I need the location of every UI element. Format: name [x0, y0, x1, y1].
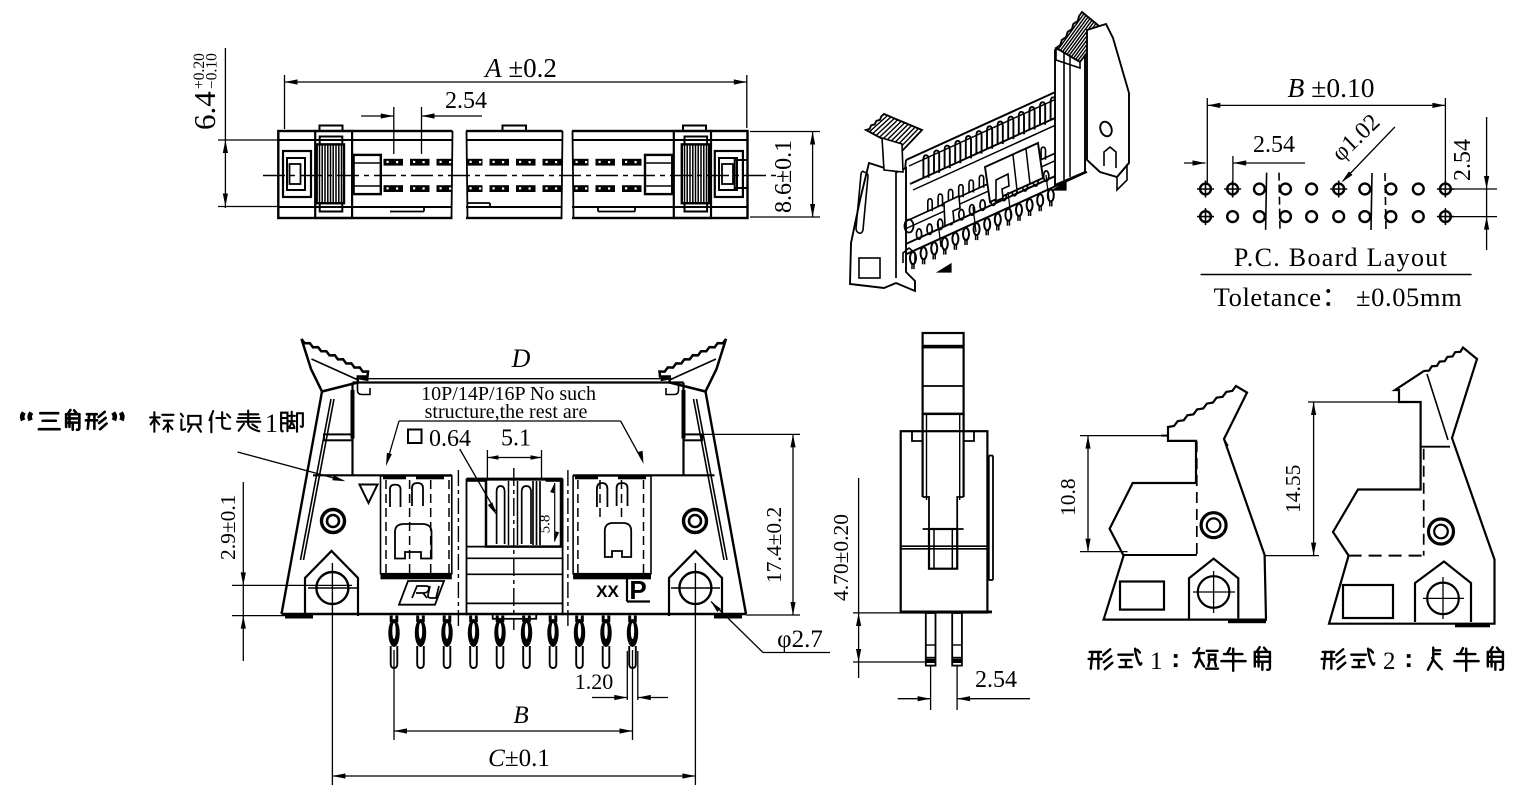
svg-text:6.4: 6.4: [187, 91, 222, 130]
svg-text:8.6±0.1: 8.6±0.1: [771, 140, 797, 213]
svg-text:5.8: 5.8: [538, 515, 554, 534]
svg-text:φ2.7: φ2.7: [777, 626, 823, 653]
svg-text:XX: XX: [596, 582, 619, 601]
svg-text:2.9±0.1: 2.9±0.1: [216, 494, 240, 560]
svg-text:0.64: 0.64: [429, 426, 471, 452]
svg-text:14.55: 14.55: [1281, 465, 1305, 513]
svg-text:Toletance： ±0.05mm: Toletance： ±0.05mm: [1214, 282, 1463, 312]
svg-text:2.54: 2.54: [1450, 139, 1476, 181]
svg-text:D: D: [511, 344, 531, 373]
svg-text:10.8: 10.8: [1056, 478, 1080, 516]
svg-text:B ±0.10: B ±0.10: [1288, 72, 1375, 103]
svg-text:C±0.1: C±0.1: [488, 745, 550, 772]
svg-text:2.54: 2.54: [1253, 132, 1295, 158]
svg-text:2: 2: [1383, 648, 1396, 675]
svg-text:P: P: [629, 575, 646, 605]
svg-text:2.54: 2.54: [445, 88, 487, 114]
svg-text:1.20: 1.20: [575, 669, 614, 694]
svg-text:−0.10: −0.10: [204, 53, 221, 89]
svg-text:2.54: 2.54: [975, 667, 1017, 693]
svg-text:P.C. Board Layout: P.C. Board Layout: [1234, 243, 1448, 272]
svg-text:1: 1: [265, 409, 278, 438]
svg-text:A ±0.2: A ±0.2: [483, 53, 557, 83]
svg-text:structure,the rest are: structure,the rest are: [425, 401, 588, 423]
svg-text:1: 1: [1150, 648, 1163, 675]
svg-text:5.1: 5.1: [501, 426, 531, 452]
svg-text:4.70±0.20: 4.70±0.20: [829, 514, 853, 601]
svg-text:17.4±0.2: 17.4±0.2: [762, 507, 786, 583]
svg-text:B: B: [513, 702, 528, 729]
